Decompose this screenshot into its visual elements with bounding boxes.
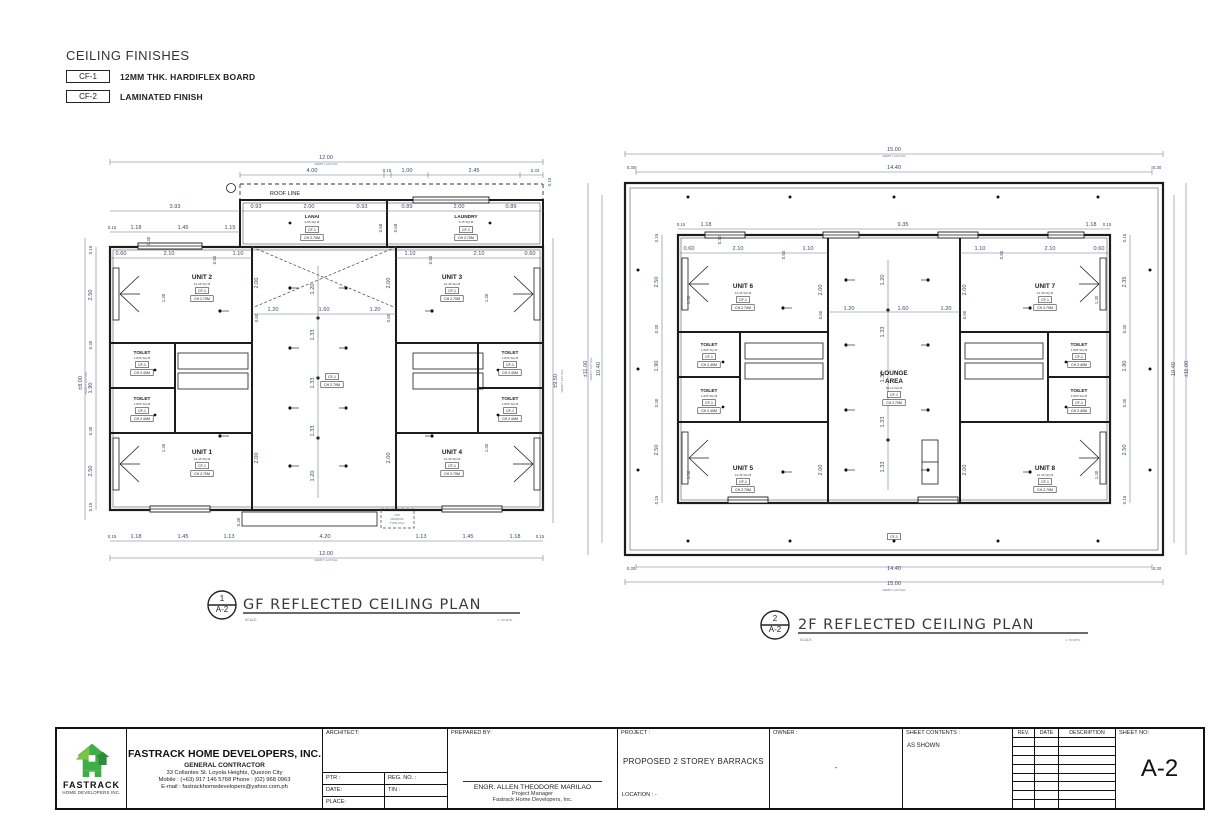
plan-text: 12.46 SQ.M [735,473,752,477]
project-label: PROJECT : [621,730,650,736]
plan-text: 1.825 SQ.M [701,394,718,398]
plan-text: 2.45 [469,168,480,174]
finish-tag: CH 2.40M [701,409,717,413]
finish-tag: CH 2.70M [194,297,210,301]
logo-subtitle: HOME DEVELOPERS INC. [62,790,120,795]
room-label: UNIT 7 [1035,283,1056,290]
revision-row [1013,774,1115,783]
plan-text: 2.35 [1122,277,1128,288]
finish-tag: CH 2.40M [134,417,150,421]
plan-text: 1.10 [803,246,814,252]
finish-tag: CF-1 [1075,401,1083,405]
finish-tag: CH 2.40M [502,417,518,421]
empty-field [385,797,447,808]
plan-text: 1.00 [402,168,413,174]
plan-text: 1.10 [405,251,416,257]
plan-text: 12.00 [319,155,333,161]
drawing-sheet: CEILING FINISHES CF-1 12MM THK. HARDIFLE… [0,0,1212,825]
plan-text: 1.45 [463,534,474,540]
legend-item-cf1: CF-1 12MM THK. HARDIFLEX BOARD [66,70,255,83]
company-address: 33 Collantes St. Loyola Heights, Quezon … [166,770,282,776]
finish-tag: CH 2.70M [194,472,210,476]
finish-tag: CF-1 [198,289,206,293]
plan-text: 1.90 [88,383,94,394]
plan-text: 0.60 [818,310,823,319]
plan-text: 1.33 [310,330,316,341]
title-block: FASTRACK HOME DEVELOPERS INC. FASTRACK H… [55,727,1205,810]
plan-text: 0.30 [88,340,93,349]
revision-row [1013,747,1115,756]
plan-text: 1.20 [844,306,855,312]
reg-no-label: REG. NO. : [385,773,447,785]
plan-text: 0.60 [525,251,536,257]
plan-text: 1.18 [701,222,712,228]
plan-text: 2.50 [88,466,94,477]
project-cell: PROJECT : PROPOSED 2 STOREY BARRACKS LOC… [618,729,770,808]
plan-text: 14.40 [887,165,901,171]
plan-text: SCALE: [800,638,812,642]
place-label: PLACE: [323,797,385,808]
plan-text: 1.45 [178,225,189,231]
room-label: UNIT 3 [442,274,463,281]
plan-text: 0.93 [251,204,262,210]
gf-reflected-ceiling-plan: 12.00VERIFY ACTUAL4.000.151.002.450.330.… [80,148,580,648]
plan-text: 1.33 [880,327,886,338]
company-name: FASTRACK HOME DEVELOPERS, INC. [128,748,321,760]
cf2-label: LAMINATED FINISH [120,92,203,102]
plan-text: 0.15 [108,534,117,539]
plan-text: 1.90 [654,361,660,372]
plan-text: 1.20 [268,307,279,313]
finish-tag: CF-1 [506,363,514,367]
plan-text: 0.15 [654,233,659,242]
plan-text: 0.30 [146,236,151,245]
plan-text: 1.20 [310,284,316,295]
plan-text: VERIFY ACTUAL [84,371,88,395]
cf2-tag: CF-2 [66,90,110,103]
plan-text: 1.33 [310,378,316,389]
plan-text: 1 [220,594,225,603]
plan-text: 1.18 [131,225,142,231]
plan-text: 0.60 [684,246,695,252]
plan-text: 0.33 [531,168,540,173]
plan-text: 0.30 [1122,398,1127,407]
plan-text: 12.46 SQ.M [194,457,211,461]
plan-text: 15.00 [887,581,901,587]
description-col-label: DESCRIPTION [1059,729,1115,737]
owner-label: OWNER : [773,730,798,736]
plan-text: 0.15 [547,177,552,186]
finish-tag: CH 2.70M [458,236,474,240]
revision-row [1013,791,1115,800]
owner-value: - [770,763,902,772]
architect-label: ARCHITECT: [326,730,359,736]
plan-text: 1.825 SQ.M [1071,348,1088,352]
finish-tag: CH 2.70M [304,236,320,240]
plan-text: 2.00 [304,204,315,210]
owner-cell: OWNER : - [770,729,903,808]
finish-tag: CF-1 [448,289,456,293]
revision-row [1013,756,1115,765]
sheet-number-cell: SHEET NO: A-2 [1116,729,1203,808]
plan-text: 0.60 [1094,246,1105,252]
finish-tag: CF-1 [890,535,898,539]
plan-text: 0.15 [677,222,686,227]
plan-text: 0.30 [627,165,636,170]
rev-col-label: REV. [1013,729,1035,737]
plan-text: 10.40 [596,362,602,376]
plan-text: 12.46 SQ.M [444,457,461,461]
finish-tag: CF-1 [890,393,898,397]
plan-text: 0.15 [108,225,117,230]
room-label: UNIT 4 [442,449,463,456]
plan-text: 1.825 SQ.M [701,348,718,352]
plan-text: 0.30 [1153,165,1162,170]
plan-text: 15.00 [887,147,901,153]
finish-tag: CF-1 [308,228,316,232]
plan-text: 1.33 [880,462,886,473]
plan-text: 1.18 [510,534,521,540]
plan-text: 1.15 [225,225,236,231]
company-type: GENERAL CONTRACTOR [184,762,265,769]
finish-tag: CF-1 [1041,480,1049,484]
plan-text: 12.00 [319,551,333,557]
plan-text: 1 : 50 MTS. [1065,638,1081,642]
architect-fields: PTR : REG. NO. : DATE: TIN : PLACE: [323,772,447,808]
plan-text: 10.40 [1171,362,1177,376]
finish-tag: CH 2.40M [1071,409,1087,413]
plan-text: 0.15 [536,534,545,539]
plan-text: 0.30 [88,426,93,435]
plan-text: 1.30 [484,443,489,452]
plan-text: 0.89 [402,204,413,210]
finish-tag: CH 2.70M [1037,488,1053,492]
shaft-box [922,440,938,484]
plan-text: 2.50 [88,290,94,301]
plan-text: VERIFY ACTUAL [882,588,906,592]
plan-text: 0.50 [212,255,217,264]
company-contact: Mobile : (+63) 917 146 5768 Phone : (02)… [159,777,291,783]
plan-text: 0.68 [393,223,398,232]
room-label: UNIT 2 [192,274,213,281]
company-email: E-mail : fastrackhomedevelopers@yahoo.co… [161,784,288,790]
ptr-label: PTR : [323,773,385,785]
legend-item-cf2: CF-2 LAMINATED FINISH [66,90,255,103]
finish-tag: CH 2.70M [735,488,751,492]
finish-tag: CH 2.70M [324,383,340,387]
plan-text: 1.20 [370,307,381,313]
plan-text: 2.50 [654,445,660,456]
plan-text: 2.00 [818,465,824,476]
plan-text: 0.15 [1122,495,1127,504]
plan-text: 4.20 [320,534,331,540]
finish-tag: CF-1 [138,409,146,413]
plan-text: A-2 [769,625,782,634]
plan-text: 1.60 [319,307,330,313]
revision-row [1013,765,1115,774]
cf1-tag: CF-1 [66,70,110,83]
plan-text: 1.825 SQ.M [502,402,519,406]
tin-label: TIN : [385,785,447,797]
sheet-contents-cell: SHEET CONTENTS : AS SHOWN [903,729,1013,808]
plan-text: A-2 [216,605,229,614]
plan-text: 2 [773,614,778,623]
date-col-label: DATE [1035,729,1059,737]
plan-text: VERIFY ACTUAL [314,558,338,562]
project-name: PROPOSED 2 STOREY BARRACKS [618,757,769,766]
sheet-no-label: SHEET NO: [1119,730,1149,736]
plan-text: 36.12 SQ.M [886,386,903,390]
plan-text: ROOF LINE [270,191,300,197]
cf1-label: 12MM THK. HARDIFLEX BOARD [120,72,255,82]
plan-text: VERIFY ACTUAL [314,162,338,166]
room-label: UNIT 1 [192,449,213,456]
finish-tag: CF-1 [328,375,336,379]
plan-text: 0.60 [386,313,391,322]
prepared-by-cell: PREPARED BY: ENGR. ALLEN THEODORE MARILA… [448,729,618,808]
plan-text: 2.00 [254,278,260,289]
plan-text: 1.33 [880,417,886,428]
plan-text: 2.00 [962,465,968,476]
plan-text: 0.15 [88,502,93,511]
plan-text: 1.90 [1122,361,1128,372]
plan-text: 1.30 [686,295,691,304]
plan-text: 0.30 [654,398,659,407]
sheet-contents-value: AS SHOWN [907,743,940,749]
plan-text: 12.46 SQ.M [735,291,752,295]
finish-tag: CF-1 [506,409,514,413]
plan-text: 6.96 SQ.M [305,220,320,224]
revision-table: REV. DATE DESCRIPTION [1013,729,1116,808]
plan-text: 1.10 [233,251,244,257]
finish-tag: CF-1 [448,464,456,468]
plan-text: TYPE ACU [390,521,405,525]
plan-text: 0.15 [654,495,659,504]
plan-text: 0.50 [781,250,786,259]
plan-text: 2.50 [1122,445,1128,456]
plan-text: 12.46 SQ.M [194,282,211,286]
finish-tag: CF-1 [462,228,470,232]
plan-text: 1.13 [224,534,235,540]
plan-text: 1.33 [880,372,886,383]
plan-text: 0.50 [428,255,433,264]
finish-tag: CH 2.70M [444,472,460,476]
plan-text: 2.10 [733,246,744,252]
finish-tag: CH 2.40M [502,371,518,375]
revision-row [1013,738,1115,747]
louver-strip [242,512,377,526]
plan-text: 1.30 [161,443,166,452]
plan-text: 1.60 [898,306,909,312]
plan-text: 2.10 [1045,246,1056,252]
room-label: UNIT 8 [1035,465,1056,472]
prepared-by-label: PREPARED BY: [451,730,492,736]
architect-cell: ARCHITECT: PTR : REG. NO. : DATE: TIN : … [323,729,448,808]
plan-text: 0.30 [1122,324,1127,333]
prepared-by-company: Fastrack Home Developers, Inc. [493,797,573,803]
revision-row [1013,782,1115,791]
plan-text: 0.93 [357,204,368,210]
plan-text: 2F REFLECTED CEILING PLAN [798,617,1034,633]
finish-tag: CF-1 [739,298,747,302]
plan-text: 1.30 [1094,470,1099,479]
plan-text: 0.15 [383,168,392,173]
room-label: UNIT 5 [733,465,754,472]
plan-text: 0.15 [88,245,93,254]
plan-text: 1.20 [880,275,886,286]
f2-walls [678,235,1110,503]
plan-text: 0.30 [654,324,659,333]
plan-text: 1.20 [941,306,952,312]
plan-text: 0.30 [627,566,636,571]
plan-text: ±11.00 [1184,361,1190,378]
plan-text: 1 : 50 MTS. [497,618,513,622]
plan-text: VERIFY ACTUAL [589,357,593,381]
finish-tag: CH 2.70M [1037,306,1053,310]
plan-text: VERIFY ACTUAL [882,154,906,158]
finish-tag: CH 2.40M [134,371,150,375]
plan-text: 2.00 [818,285,824,296]
plan-text: 1.45 [178,534,189,540]
plan-text: 0.40 [236,517,241,526]
company-info-cell: FASTRACK HOME DEVELOPERS, INC. GENERAL C… [127,729,323,808]
plan-text: 9.35 [898,222,909,228]
plan-text: 2.00 [962,285,968,296]
plan-text: 12.46 SQ.M [444,282,461,286]
finish-tag: CH 2.40M [701,363,717,367]
plan-text: 0.30 [1153,566,1162,571]
finish-tag: CF-1 [705,401,713,405]
plan-text: 0.15 [1103,222,1112,227]
plan-text: 0.50 [999,250,1004,259]
plan-text: VERIFY ACTUAL [560,369,564,393]
plan-text: 0.30 [717,235,722,244]
plan-text: 1.825 SQ.M [1071,394,1088,398]
logo-name: FASTRACK [63,780,120,790]
plan-text: 0.68 [378,223,383,232]
finish-tag: CH 2.70M [886,401,902,405]
plan-text: 0.89 [506,204,517,210]
plan-text: 1.20 [310,471,316,482]
plan-text: 2.00 [386,278,392,289]
plan-text: 2.10 [164,251,175,257]
finish-tag: CF-1 [1075,355,1083,359]
plan-text: GF REFLECTED CEILING PLAN [243,597,481,613]
prepared-by-name: ENGR. ALLEN THEODORE MARILAO [474,784,591,791]
plan-text: 14.40 [887,566,901,572]
plan-text: ±9.50 [553,374,559,388]
room-label: UNIT 6 [733,283,754,290]
revision-row [1013,800,1115,808]
plan-text: 4.00 [307,168,318,174]
finish-tag: CF-1 [138,363,146,367]
location-label: LOCATION : - [622,792,657,798]
sheet-contents-label: SHEET CONTENTS : [906,730,960,736]
plan-text: 1.18 [131,534,142,540]
ceiling-finishes-legend: CEILING FINISHES CF-1 12MM THK. HARDIFLE… [66,48,255,110]
plan-text: 1.30 [1094,295,1099,304]
company-logo-cell: FASTRACK HOME DEVELOPERS INC. [57,729,127,808]
plan-text: 2.00 [386,453,392,464]
finish-tag: CH 2.40M [1071,363,1087,367]
plan-text: 1.825 SQ.M [134,356,151,360]
plan-text: 0.60 [254,313,259,322]
plan-text: 12.46 SQ.M [1037,291,1054,295]
plan-text: 2.00 [254,453,260,464]
plan-text: 1.10 [975,246,986,252]
room-label: AREA [885,378,903,385]
plan-text: 1.13 [416,534,427,540]
finish-tag: CF-1 [198,464,206,468]
plan-text: 1.30 [686,470,691,479]
plan-text: 5.15 SQ.M [459,220,474,224]
legend-title: CEILING FINISHES [66,48,255,63]
plan-text: 2.00 [454,204,465,210]
finish-tag: CF-1 [705,355,713,359]
plan-text: 1.18 [1086,222,1097,228]
plan-text: 0.15 [1122,233,1127,242]
plan-text: 2.10 [474,251,485,257]
f2-reflected-ceiling-plan: 15.00VERIFY ACTUAL0.3014.400.300.151.189… [578,140,1198,652]
fastrack-logo-icon [72,742,112,780]
sheet-number: A-2 [1116,755,1203,783]
plan-text: 1.825 SQ.M [134,402,151,406]
plan-text: SCALE: [245,618,257,622]
finish-tag: CH 2.70M [735,306,751,310]
finish-tag: CH 2.70M [444,297,460,301]
plan-text: 1.30 [484,293,489,302]
date-label: DATE: [323,785,385,797]
finish-tag: CF-1 [739,480,747,484]
plan-text: 1.30 [161,293,166,302]
finish-tag: CF-1 [1041,298,1049,302]
plan-text: 3.93 [170,204,181,210]
plan-text: 12.46 SQ.M [1037,473,1054,477]
plan-text: 2.50 [654,277,660,288]
signature-line [463,781,602,782]
plan-text: 1.825 SQ.M [502,356,519,360]
revision-header: REV. DATE DESCRIPTION [1013,729,1115,738]
plan-text: 1.33 [310,426,316,437]
plan-text: 0.60 [116,251,127,257]
plan-text: 0.60 [962,310,967,319]
